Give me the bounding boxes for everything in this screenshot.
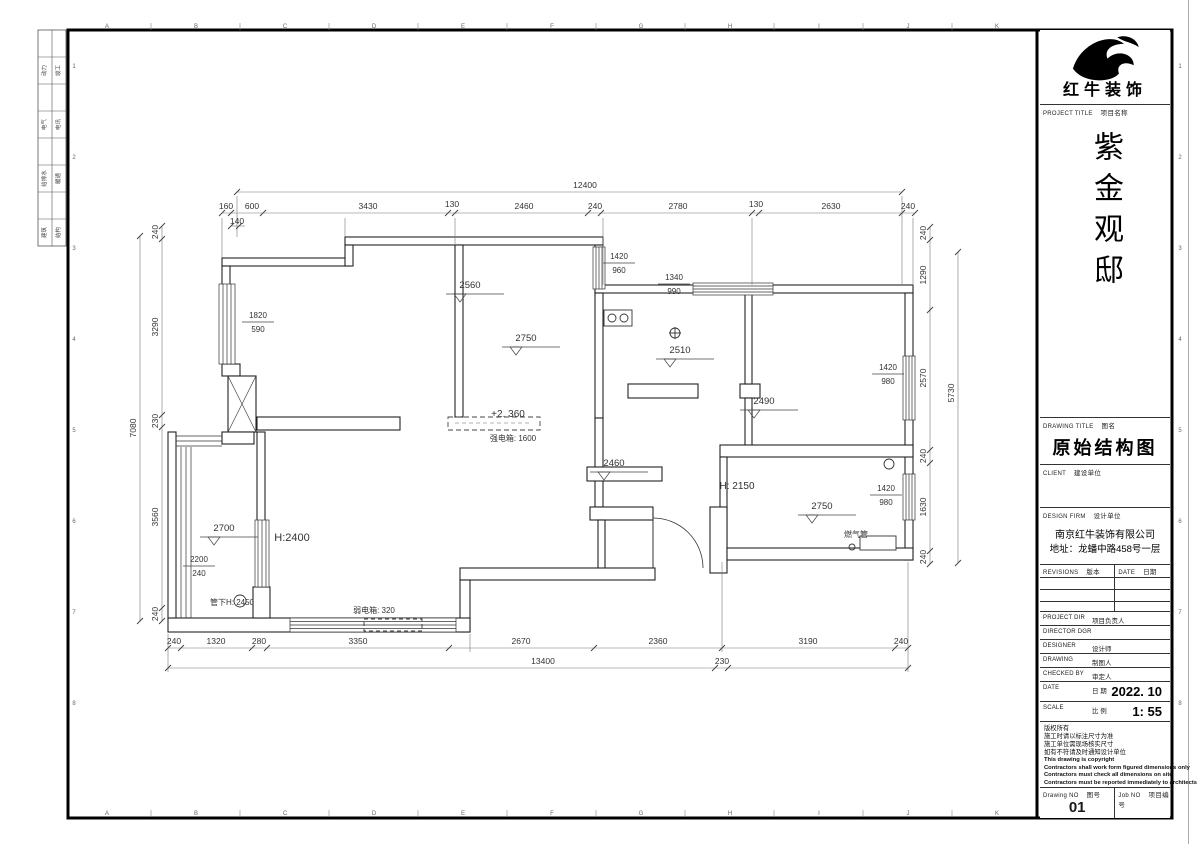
- stamp-label: 电气: [40, 119, 48, 131]
- revision-row: [1040, 590, 1170, 602]
- row-label-en: DESIGNER: [1043, 643, 1076, 649]
- border-number: 7: [72, 610, 76, 616]
- row-label-cn: 审定人: [1092, 671, 1112, 681]
- row-value: 2022. 10: [1111, 684, 1162, 699]
- date-col-label-en: DATE: [1118, 570, 1135, 576]
- brand-cell: 红牛装饰: [1040, 30, 1170, 105]
- border-letter: F: [550, 811, 554, 817]
- border-letter: A: [105, 811, 109, 817]
- sill-dim-label: 240: [192, 569, 206, 578]
- dimension-label: 240: [150, 607, 160, 621]
- dimension-label: 3430: [359, 201, 378, 211]
- dimension-label: 240: [901, 201, 915, 211]
- border-number: 4: [72, 337, 76, 343]
- project-label-cn: 项目名称: [1101, 110, 1128, 117]
- title-block: 红牛装饰 PROJECT TITLE 项目名称 紫金观邸 DRAWING TIT…: [1040, 30, 1170, 818]
- border-letter: K: [995, 24, 999, 30]
- dimension-label: 3190: [799, 636, 818, 646]
- dimension-label: 240: [918, 550, 928, 564]
- dimension-label: 240: [588, 201, 602, 211]
- drawing-title: 原始结构图: [1040, 434, 1170, 460]
- note-line: 施工时请以标注尺寸为准: [1044, 733, 1170, 741]
- drawing-no-cell: Drawing NO 图号 01 Job NO 项目编号: [1040, 788, 1170, 818]
- revisions-header: REVISIONS 版本 DATE 日期: [1040, 565, 1170, 578]
- border-letter: G: [639, 811, 644, 817]
- border-number: 3: [72, 246, 76, 252]
- border-number: 8: [1178, 701, 1182, 707]
- note-line: 如有不符请及时通知设计单位: [1044, 749, 1170, 757]
- level-label: 2490: [753, 396, 774, 407]
- note-line: Contractors must check all dimensions on…: [1044, 772, 1170, 780]
- opening-dim-label: 1420: [610, 252, 628, 261]
- row-label-en: DRAWING: [1043, 657, 1073, 663]
- drawing-title-cell: DRAWING TITLE 图名 原始结构图: [1040, 418, 1170, 465]
- row-label-cn: 项目负责人: [1092, 615, 1125, 625]
- personnel-row: CHECKED BY审定人: [1040, 668, 1170, 682]
- dimension-label: 13400: [531, 656, 555, 666]
- stamp-label: 给排水: [40, 170, 48, 187]
- stamp-label: 竣工: [54, 65, 62, 77]
- border-letter: D: [372, 811, 377, 817]
- entry-door: [653, 518, 703, 568]
- border-letter: J: [907, 811, 910, 817]
- row-label-cn: 制图人: [1092, 657, 1112, 667]
- row-label-en: SCALE: [1043, 705, 1064, 711]
- border-number: 6: [1178, 519, 1182, 525]
- revision-row: [1040, 578, 1170, 590]
- border-letter: E: [461, 24, 465, 30]
- dimension-label: 240: [894, 636, 908, 646]
- sheet-frame: [38, 30, 1172, 818]
- row-value: 1: 55: [1132, 704, 1162, 719]
- row-label-cn: 比 例: [1092, 705, 1107, 715]
- dimension-label: 240: [918, 226, 928, 240]
- row-label-en: CHECKED BY: [1043, 671, 1084, 677]
- sill-dim-label: 980: [879, 498, 893, 507]
- border-letter: I: [818, 811, 820, 817]
- dimension-label: 160: [219, 201, 233, 211]
- note-line: This drawing is copyright: [1044, 757, 1170, 765]
- border-letter: J: [907, 24, 910, 30]
- border-number: 8: [72, 701, 76, 707]
- gas-meter-icon: [884, 459, 894, 469]
- dimension-label: 12400: [573, 180, 597, 190]
- opening-dim-label: 1420: [879, 363, 897, 372]
- job-no-label-en: Job NO: [1118, 793, 1140, 799]
- dimension-label: 1320: [207, 636, 226, 646]
- stamp-label: 动力: [40, 65, 48, 76]
- dimension-label: 600: [245, 201, 259, 211]
- personnel-row: DRAWING制图人: [1040, 654, 1170, 668]
- level-triangle-icon: [510, 347, 522, 355]
- drawing-no-label-cn: 图号: [1087, 792, 1101, 799]
- dimension-label: 3560: [150, 507, 160, 526]
- opening-dim-label: 1340: [665, 273, 683, 282]
- dimension-label: 5730: [946, 383, 956, 402]
- plan-annotation: 管下H: 2450: [210, 597, 255, 607]
- drawing-number: 01: [1040, 799, 1114, 816]
- dimension-label: 2670: [512, 636, 531, 646]
- border-number: 5: [72, 428, 76, 434]
- dimension-label: 2630: [822, 201, 841, 211]
- level-label: 2560: [459, 280, 480, 291]
- border-letter: H: [728, 811, 732, 817]
- plan-annotation: 弱电箱: 320: [353, 605, 395, 615]
- opening-dim-label: 2200: [190, 555, 208, 564]
- border-letter: A: [105, 24, 109, 30]
- border-letter: C: [283, 811, 288, 817]
- revisions-label-cn: 版本: [1086, 569, 1100, 576]
- level-label: 2460: [603, 458, 624, 469]
- drawing-title-label-cn: 图名: [1102, 423, 1116, 430]
- border-letter: H: [728, 24, 732, 30]
- dimension-label: 230: [150, 414, 160, 428]
- border-number: 1: [72, 64, 76, 70]
- level-label: 2750: [811, 501, 832, 512]
- firm-label-en: DESIGN FIRM: [1043, 514, 1086, 520]
- dimension-label: 1290: [918, 265, 928, 284]
- revisions-label-en: REVISIONS: [1043, 570, 1078, 576]
- project-label-en: PROJECT TITLE: [1043, 111, 1093, 117]
- notes-block: 版权所有施工时请以标注尺寸为准施工单位需现场核实尺寸如有不符请及时通知设计单位T…: [1040, 722, 1170, 788]
- dimension-label: 2360: [649, 636, 668, 646]
- level-triangle-icon: [208, 537, 220, 545]
- border-number: 4: [1178, 337, 1182, 343]
- personnel-row: DATE日 期2022. 10: [1040, 682, 1170, 702]
- redniu-logo-icon: [1068, 32, 1142, 82]
- project-name: 紫金观邸: [1083, 131, 1127, 295]
- border-letter: F: [550, 24, 554, 30]
- plan-annotation: +2. 360: [491, 409, 525, 420]
- stamp-label: 建筑: [40, 227, 48, 239]
- project-cell: PROJECT TITLE 项目名称 紫金观邸: [1040, 105, 1170, 418]
- border-number: 5: [1178, 428, 1182, 434]
- personnel-row: SCALE比 例1: 55: [1040, 702, 1170, 722]
- border-number: 2: [1178, 155, 1182, 161]
- design-firm-cell: DESIGN FIRM 设计单位 南京红牛装饰有限公司 地址：龙蟠中路458号一…: [1040, 508, 1170, 565]
- client-label-en: CLIENT: [1043, 471, 1066, 477]
- dimension-label: 240: [167, 636, 181, 646]
- border-letter: D: [372, 24, 377, 30]
- note-line: Contractors shall work form figured dime…: [1044, 765, 1170, 773]
- border-letter: B: [194, 24, 198, 30]
- opening-dim-label: 1420: [877, 484, 895, 493]
- plan-annotation: H:2400: [274, 532, 309, 544]
- sill-dim-label: 590: [251, 325, 265, 334]
- personnel-row: DESIGNER设计师: [1040, 640, 1170, 654]
- dimension-label: 130: [445, 199, 459, 209]
- stamp-label: 结构: [54, 227, 62, 239]
- border-letter: C: [283, 24, 288, 30]
- row-label-en: DATE: [1043, 685, 1059, 691]
- border-number: 6: [72, 519, 76, 525]
- sill-dim-label: 980: [881, 377, 895, 386]
- border-letter: K: [995, 811, 999, 817]
- plan-annotation: 强电箱: 1600: [490, 433, 537, 443]
- level-label: 2700: [213, 523, 234, 534]
- opening-dim-label: 1820: [249, 311, 267, 320]
- border-number: 7: [1178, 610, 1182, 616]
- row-label-en: PROJECT DIR: [1043, 615, 1085, 621]
- sill-dim-label: 990: [667, 287, 681, 296]
- stamp-label: 暖通: [54, 173, 62, 185]
- row-label-en: DIRECTOR DGR: [1043, 629, 1092, 635]
- drawing-title-label-en: DRAWING TITLE: [1043, 424, 1094, 430]
- dimension-label: 2780: [669, 201, 688, 211]
- sill-dim-label: 960: [612, 266, 626, 275]
- dimension-label: 280: [252, 636, 266, 646]
- dimension-label: 230: [715, 656, 729, 666]
- row-label-cn: 设计师: [1092, 643, 1112, 653]
- border-letter: G: [639, 24, 644, 30]
- firm-label-cn: 设计单位: [1094, 513, 1121, 520]
- level-label: 2750: [515, 333, 536, 344]
- border-number: 2: [72, 155, 76, 161]
- client-cell: CLIENT 建设单位: [1040, 465, 1170, 508]
- note-line: 版权所有: [1044, 725, 1170, 733]
- level-triangle-icon: [806, 515, 818, 523]
- brand-name: 红牛装饰: [1040, 76, 1170, 100]
- dimension-label: 130: [749, 199, 763, 209]
- walls: [168, 237, 913, 632]
- level-label: 2510: [669, 345, 690, 356]
- fixture-symbols: [234, 310, 896, 631]
- personnel-row: DIRECTOR DGR: [1040, 626, 1170, 640]
- dimension-label: 7080: [128, 418, 138, 437]
- dimension-label: 1630: [918, 497, 928, 516]
- plan-annotation: H: 2150: [719, 481, 754, 492]
- floor-plan-canvas: 1240016060034301302460240278013026302401…: [0, 0, 1200, 844]
- dimension-label: 3350: [349, 636, 368, 646]
- stamp-label: 电讯: [54, 119, 62, 131]
- border-letter: E: [461, 811, 465, 817]
- date-col-label-cn: 日期: [1143, 569, 1157, 576]
- firm-address: 地址：龙蟠中路458号一层: [1040, 541, 1170, 555]
- level-triangle-icon: [664, 359, 676, 367]
- personnel-row: PROJECT DIR项目负责人: [1040, 612, 1170, 626]
- client-label-cn: 建设单位: [1074, 470, 1101, 477]
- drawing-sheet: 1240016060034301302460240278013026302401…: [0, 0, 1200, 844]
- dimension-label: 2460: [515, 201, 534, 211]
- dimension-label: 3290: [150, 317, 160, 336]
- border-number: 1: [1178, 64, 1182, 70]
- dimension-label: 2570: [918, 368, 928, 387]
- revision-row: [1040, 602, 1170, 612]
- firm-name: 南京红牛装饰有限公司: [1040, 526, 1170, 541]
- border-letter: B: [194, 811, 198, 817]
- note-line: 施工单位需现场核实尺寸: [1044, 741, 1170, 749]
- dimension-label: 240: [150, 225, 160, 239]
- row-label-cn: 日 期: [1092, 685, 1107, 695]
- dimension-label: 240: [918, 449, 928, 463]
- border-number: 3: [1178, 246, 1182, 252]
- plan-annotation: 燃气管: [844, 529, 868, 539]
